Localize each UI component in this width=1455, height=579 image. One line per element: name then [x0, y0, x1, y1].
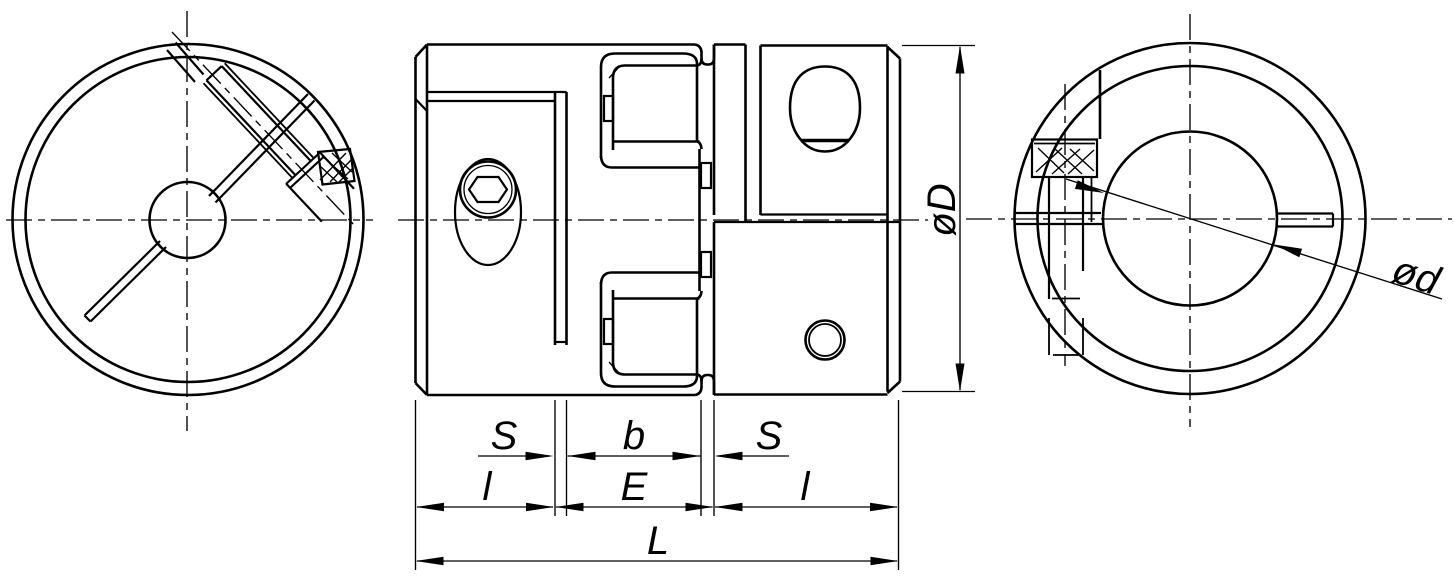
hub-length-right-label: l	[801, 465, 811, 509]
dimension-row-l-e-l: l E l	[416, 465, 898, 511]
dimension-line	[1066, 179, 1442, 299]
spider-fillet	[697, 142, 702, 150]
slit-upper-line	[216, 101, 315, 203]
right-view-center-lines	[966, 14, 1452, 427]
arrowhead-left	[715, 503, 743, 511]
arrowhead-left	[416, 503, 444, 511]
overall-length-label: L	[647, 519, 669, 563]
spider-fillet	[697, 291, 702, 299]
hex-socket	[469, 177, 507, 202]
screw-hole-outer	[806, 321, 845, 360]
right-hub-slit-lines	[714, 215, 900, 223]
screw-hole-cap	[207, 66, 222, 80]
spider-lug	[604, 96, 613, 121]
outer-diameter-dimension: øD	[902, 46, 975, 392]
screw-hole-wall	[204, 83, 293, 178]
arrowhead-right	[686, 503, 714, 511]
right-end-view	[966, 14, 1452, 427]
left-view-center-lines	[6, 11, 373, 431]
spider-top-lobe-inner	[613, 59, 702, 151]
slit-upper-line	[209, 94, 308, 196]
gap-right-label: S	[756, 414, 783, 458]
screw-head-chamfer-circle	[464, 166, 512, 214]
left-hub-face-lines	[555, 92, 567, 345]
arrowhead-right	[871, 557, 899, 565]
arrowhead-left	[416, 557, 444, 565]
bore-diameter-label: ød	[1387, 248, 1446, 305]
bore-diameter-dimension: ød	[1066, 179, 1446, 304]
arrowhead-right	[526, 503, 554, 511]
screw-hole-rim-line	[167, 50, 195, 82]
arrowhead-left	[556, 503, 584, 511]
drawing-page: øD ød S b S	[0, 0, 1455, 579]
pocket-face-line	[286, 153, 320, 185]
slit-lower-line	[91, 247, 167, 322]
clamp-slit-right-view	[1016, 213, 1333, 227]
screw-hole-inner	[809, 324, 841, 356]
arrowhead-right	[526, 452, 554, 460]
slit-chamfer-mark	[416, 99, 428, 111]
spider-bar-bottom	[601, 156, 700, 168]
side-view	[398, 45, 928, 396]
outer-diameter-label: øD	[920, 183, 964, 236]
dimension-annotations: øD ød S b S	[416, 46, 1447, 571]
keyway-mark	[1277, 214, 1333, 227]
dimension-row-total-length: L	[416, 519, 899, 565]
jaw-coupling-technical-drawing: øD ød S b S	[0, 0, 1455, 579]
arrowhead-down	[956, 364, 965, 392]
hub-length-left-label: l	[483, 465, 493, 509]
arrowhead-left	[568, 452, 596, 460]
left-hub-slit-lines	[427, 92, 567, 101]
spider-lug	[604, 319, 613, 344]
screw-shaft-line	[207, 80, 296, 175]
spider-lug	[701, 163, 711, 188]
slit-end-cap	[85, 316, 91, 322]
gap-left-label: S	[491, 414, 518, 458]
spider-width-label: b	[623, 414, 645, 458]
slit-lower-line	[85, 241, 161, 316]
arrowhead-left	[715, 452, 743, 460]
arrowhead	[1075, 180, 1104, 193]
spider-bottom-lobe-inner	[613, 290, 702, 382]
left-end-view	[6, 11, 373, 431]
arrowhead-right	[870, 503, 898, 511]
pocket-side-line	[286, 184, 322, 222]
center-distance-label: E	[621, 465, 649, 509]
arrowhead	[1274, 245, 1302, 258]
arrowhead-up	[956, 46, 965, 74]
spider-bar-top-lower	[601, 273, 700, 285]
screw-shaft-line	[222, 66, 311, 161]
hex-socket-screw-front	[455, 159, 521, 265]
spider-lug	[701, 252, 711, 277]
dimension-row-s-b-s: S b S	[478, 414, 789, 460]
arrowhead-right	[673, 452, 701, 460]
